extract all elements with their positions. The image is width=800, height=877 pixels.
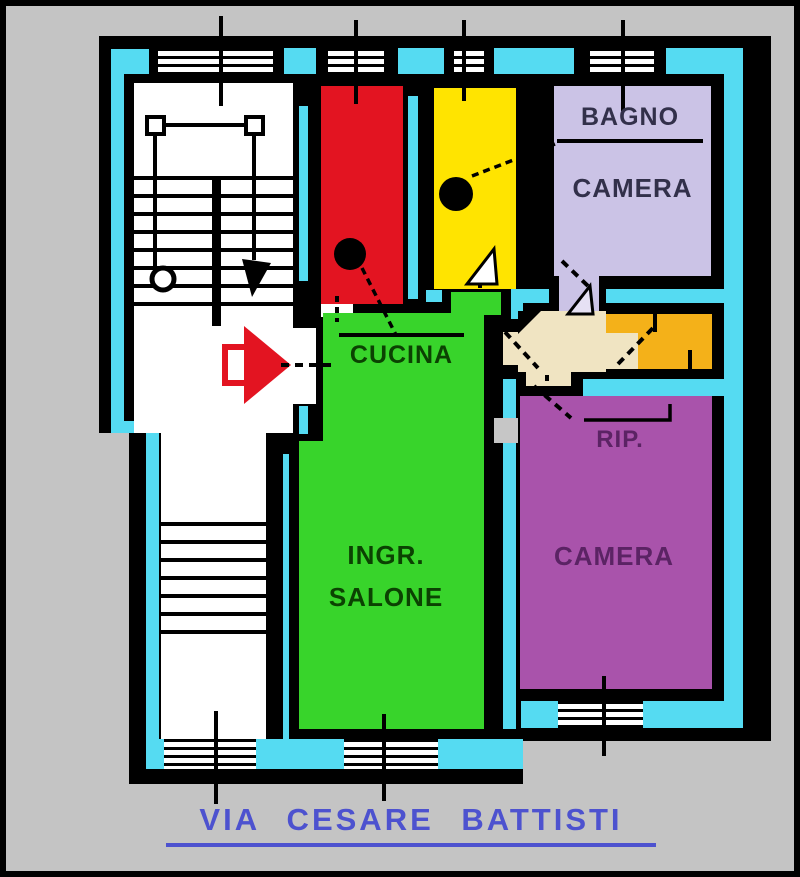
window: [158, 48, 273, 74]
label-bedroom-top: CAMERA: [554, 173, 711, 204]
wall-cavity-strip: [398, 48, 444, 74]
wall-cavity-strip: [606, 289, 724, 303]
wall-cavity-strip: [724, 48, 743, 728]
entry-door-gap: [293, 328, 316, 404]
wall-cavity-strip: [408, 96, 418, 299]
label-living-line2: SALONE: [306, 582, 466, 613]
window: [454, 48, 484, 74]
wall-cavity-strip: [583, 379, 724, 396]
window: [590, 48, 654, 74]
wall-cavity-strip: [146, 433, 159, 769]
stair-treads-lower: [161, 522, 266, 648]
hallway: [606, 333, 638, 369]
hall-vestibule: [559, 259, 599, 312]
window: [558, 701, 643, 728]
wall-cavity-strip: [299, 406, 308, 434]
wall-cavity-strip: [284, 48, 316, 74]
wall-cavity-strip: [111, 49, 124, 433]
hallway: [526, 372, 571, 386]
wall-cavity-strip: [299, 106, 308, 281]
street-label: VIA CESARE BATTISTI: [166, 802, 656, 847]
wall-cavity-strip: [494, 48, 574, 74]
wall-cavity-strip: [283, 454, 289, 739]
label-bathroom: BAGNO: [557, 103, 703, 132]
stair-divider: [212, 176, 221, 326]
window: [344, 739, 438, 769]
room-kitchen: [321, 86, 403, 304]
shaft: [494, 418, 518, 443]
room-living: [323, 313, 484, 441]
hallway: [518, 311, 606, 372]
room-bathroom: [434, 88, 516, 289]
label-kitchen: CUCINA: [339, 341, 464, 370]
hallway: [503, 332, 518, 365]
wall-cavity-strip: [666, 48, 729, 74]
floorplan: BAGNO CAMERA CUCINA INGR. SALONE RIP. CA…: [0, 0, 800, 877]
window: [328, 48, 384, 74]
window: [164, 739, 256, 769]
label-bedroom-bottom: CAMERA: [534, 541, 694, 572]
label-living-line1: INGR.: [306, 540, 466, 571]
label-storage: RIP.: [584, 426, 656, 454]
wall-cavity-strip: [426, 290, 442, 302]
room-living: [451, 292, 501, 315]
